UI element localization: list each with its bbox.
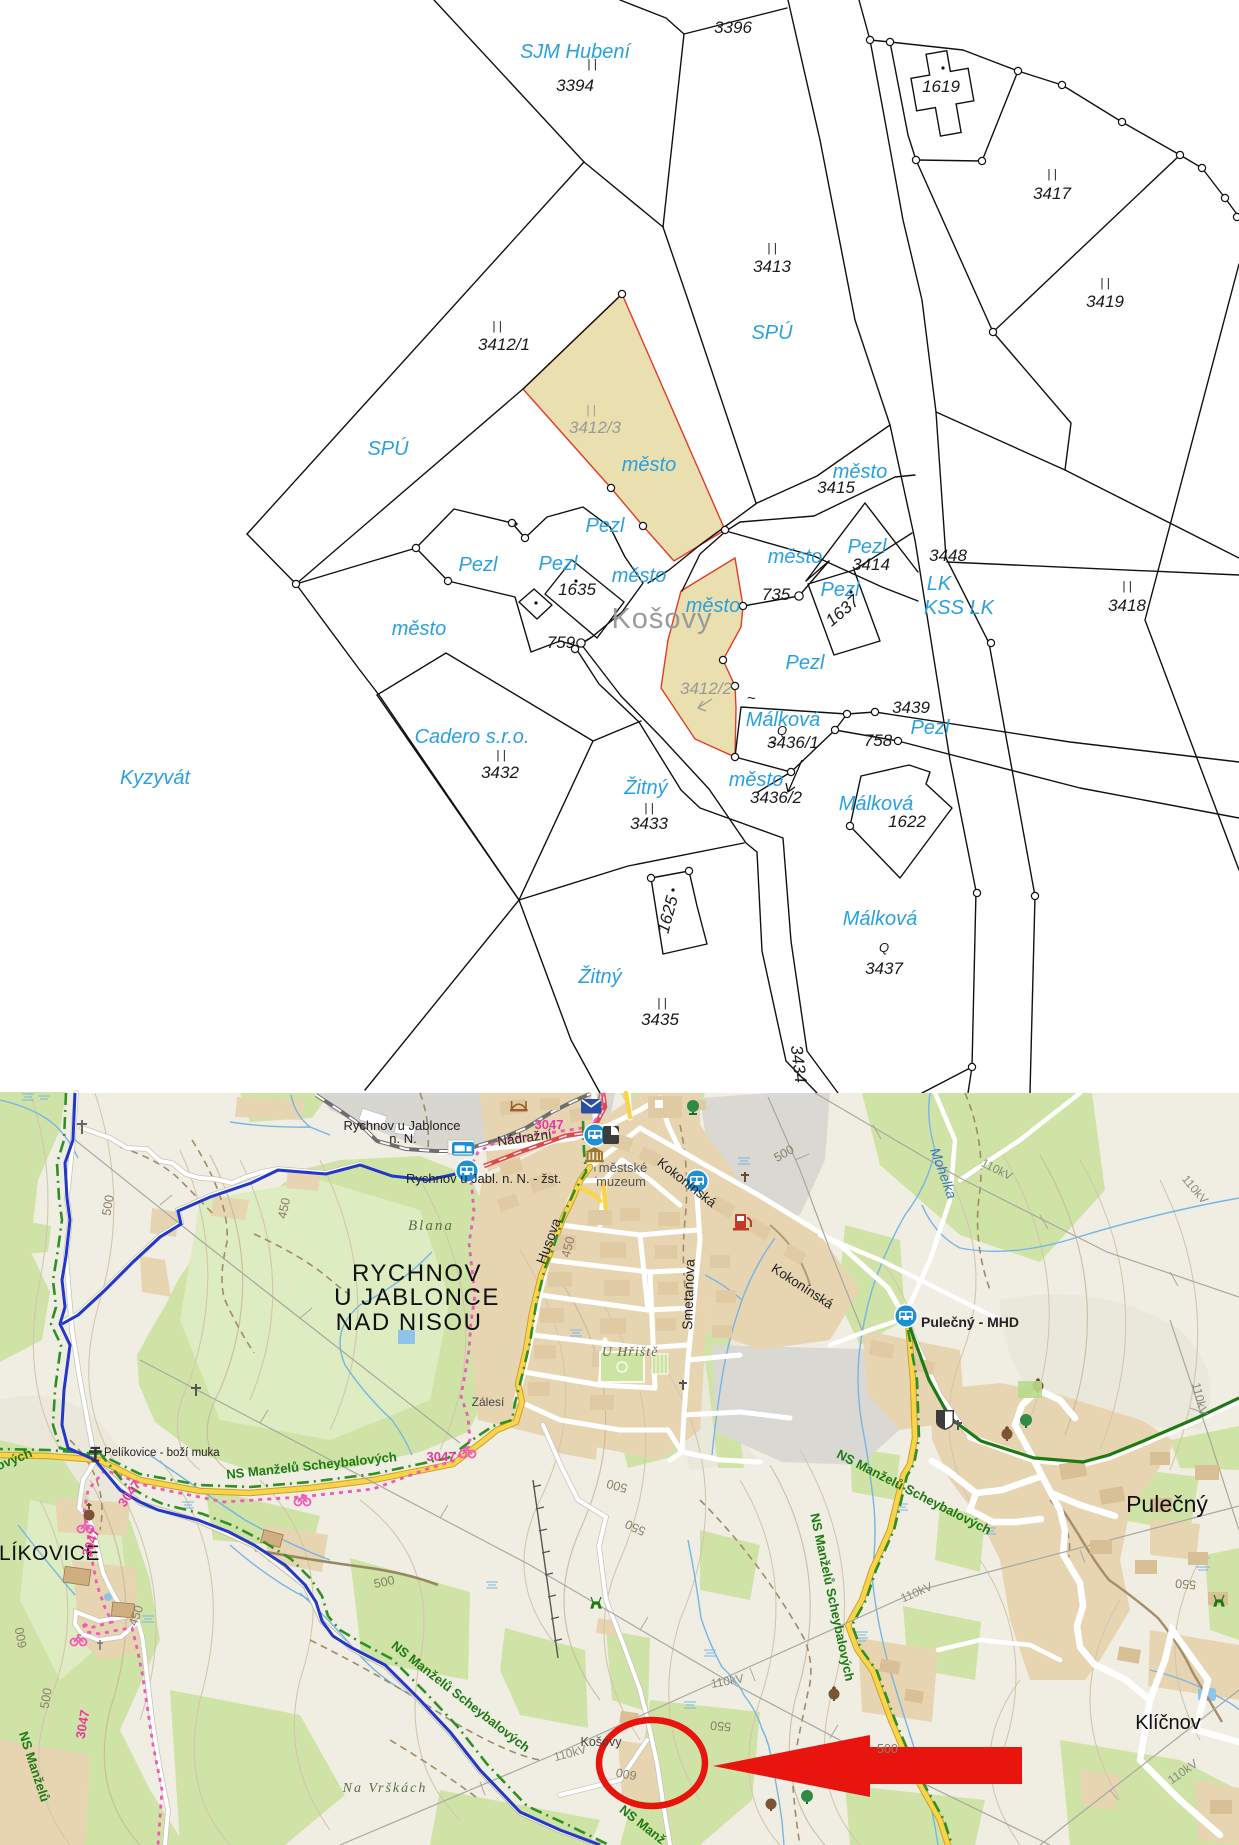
svg-text:3396: 3396 bbox=[714, 18, 752, 37]
svg-text:3418: 3418 bbox=[1108, 596, 1146, 615]
svg-text:3412/2: 3412/2 bbox=[680, 679, 733, 698]
svg-text:Smetanova: Smetanova bbox=[679, 1259, 697, 1331]
svg-text:Kyzyvát: Kyzyvát bbox=[120, 767, 191, 789]
svg-text:| |: | | bbox=[496, 748, 506, 762]
svg-text:550: 550 bbox=[1175, 1576, 1197, 1592]
svg-text:Cadero s.r.o.: Cadero s.r.o. bbox=[415, 726, 530, 748]
svg-text:3436/2: 3436/2 bbox=[750, 788, 803, 807]
svg-text:1622: 1622 bbox=[888, 812, 926, 831]
svg-text:Žitný: Žitný bbox=[623, 776, 668, 799]
svg-text:~: ~ bbox=[747, 690, 756, 707]
svg-text:1619: 1619 bbox=[922, 77, 960, 96]
svg-text:500: 500 bbox=[877, 1742, 898, 1756]
svg-text:SPÚ: SPÚ bbox=[751, 321, 793, 344]
svg-text:Málková: Málková bbox=[843, 908, 917, 930]
svg-text:městské: městské bbox=[599, 1160, 647, 1175]
svg-text:758: 758 bbox=[864, 731, 893, 750]
svg-text:NAD NISOU: NAD NISOU bbox=[336, 1309, 483, 1336]
svg-text:město: město bbox=[622, 454, 676, 476]
svg-text:Klíčnov: Klíčnov bbox=[1135, 1712, 1201, 1734]
svg-text:Košovy: Košovy bbox=[611, 603, 712, 635]
svg-text:Košovy: Košovy bbox=[581, 1735, 623, 1749]
svg-text:Pezl: Pezl bbox=[586, 515, 625, 537]
svg-text:Zálesí: Zálesí bbox=[472, 1395, 505, 1409]
svg-text:| |: | | bbox=[767, 241, 777, 255]
svg-text:3412/1: 3412/1 bbox=[478, 335, 530, 354]
svg-text:3394: 3394 bbox=[556, 76, 594, 95]
svg-text:| |: | | bbox=[586, 403, 596, 417]
svg-text:město: město bbox=[392, 618, 446, 640]
svg-text:| |: | | bbox=[657, 996, 667, 1010]
svg-text:Pezl: Pezl bbox=[911, 717, 950, 739]
svg-text:Q: Q bbox=[879, 940, 889, 955]
svg-text:3419: 3419 bbox=[1086, 292, 1124, 311]
svg-text:KSS LK: KSS LK bbox=[924, 597, 996, 619]
svg-text:Pulečný: Pulečný bbox=[1126, 1491, 1208, 1517]
svg-text:3415: 3415 bbox=[817, 478, 855, 497]
svg-text:3412/3: 3412/3 bbox=[569, 418, 622, 437]
svg-text:3432: 3432 bbox=[481, 763, 519, 782]
svg-text:| |: | | bbox=[492, 319, 502, 333]
svg-text:| |: | | bbox=[644, 801, 654, 815]
svg-text:3417: 3417 bbox=[1033, 184, 1071, 203]
svg-text:Q: Q bbox=[777, 723, 787, 738]
svg-text:3439: 3439 bbox=[892, 698, 930, 717]
svg-text:| |: | | bbox=[1047, 167, 1057, 181]
svg-text:muzeum: muzeum bbox=[596, 1174, 646, 1189]
svg-text:město: město bbox=[768, 546, 822, 568]
svg-text:3435: 3435 bbox=[641, 1010, 679, 1029]
svg-text:| |: | | bbox=[1100, 276, 1110, 290]
svg-text:Rychnov u Jabl. n. N. - žst.: Rychnov u Jabl. n. N. - žst. bbox=[406, 1171, 561, 1186]
svg-text:~: ~ bbox=[768, 735, 777, 752]
svg-text:550: 550 bbox=[710, 1718, 732, 1734]
svg-text:735: 735 bbox=[762, 585, 791, 604]
svg-text:Blana: Blana bbox=[408, 1218, 454, 1234]
svg-text:RYCHNOV: RYCHNOV bbox=[352, 1260, 482, 1287]
svg-text:Pezl: Pezl bbox=[459, 554, 498, 576]
svg-text:| |: | | bbox=[1122, 579, 1132, 593]
svg-text:3433: 3433 bbox=[630, 814, 668, 833]
svg-text:Pulečný - MHD: Pulečný - MHD bbox=[921, 1314, 1019, 1330]
svg-text:3414: 3414 bbox=[852, 555, 890, 574]
svg-text:759: 759 bbox=[547, 633, 576, 652]
svg-text:3448: 3448 bbox=[929, 546, 967, 565]
svg-text:SJM Hubení: SJM Hubení bbox=[520, 41, 632, 63]
svg-text:3437: 3437 bbox=[865, 959, 903, 978]
svg-text:SPÚ: SPÚ bbox=[367, 437, 409, 460]
svg-text:Pezl: Pezl bbox=[539, 553, 578, 575]
svg-text:3413: 3413 bbox=[753, 257, 791, 276]
svg-text:Pezl: Pezl bbox=[786, 652, 825, 674]
svg-text:| |: | | bbox=[587, 57, 597, 71]
svg-text:n. N.: n. N. bbox=[389, 1131, 416, 1146]
svg-text:Žitný: Žitný bbox=[577, 965, 622, 988]
svg-text:Pelíkovice - boží muka: Pelíkovice - boží muka bbox=[104, 1447, 220, 1459]
svg-text:1635: 1635 bbox=[558, 580, 596, 599]
svg-text:U JABLONCE: U JABLONCE bbox=[334, 1284, 500, 1311]
svg-text:3047: 3047 bbox=[535, 1117, 564, 1132]
svg-text:U Hřiště: U Hřiště bbox=[602, 1345, 659, 1360]
svg-text:Na Vrškách: Na Vrškách bbox=[342, 1781, 428, 1796]
svg-text:3047: 3047 bbox=[427, 1449, 456, 1464]
svg-text:LK: LK bbox=[927, 573, 953, 595]
svg-text:město: město bbox=[612, 565, 666, 587]
